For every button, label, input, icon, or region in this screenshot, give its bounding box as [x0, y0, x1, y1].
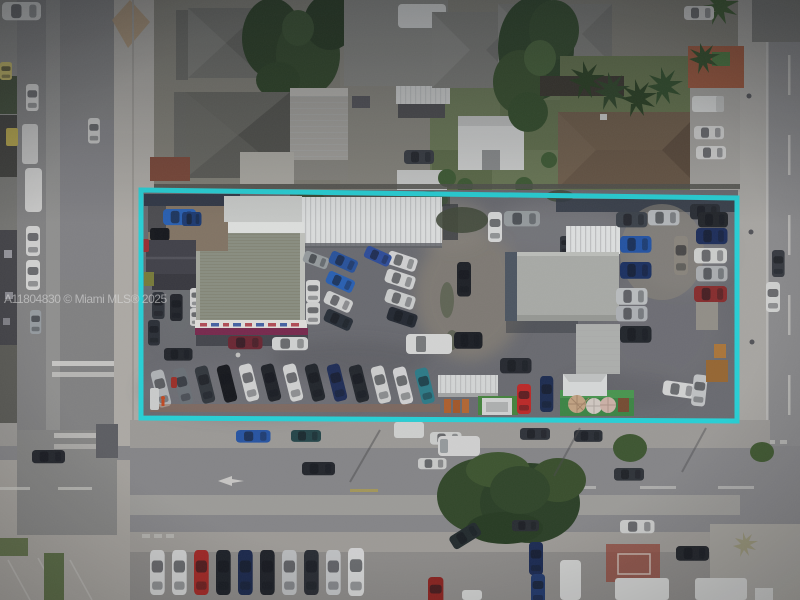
- svg-text:A11804830 © Miami MLS® 2025: A11804830 © Miami MLS® 2025: [4, 292, 168, 306]
